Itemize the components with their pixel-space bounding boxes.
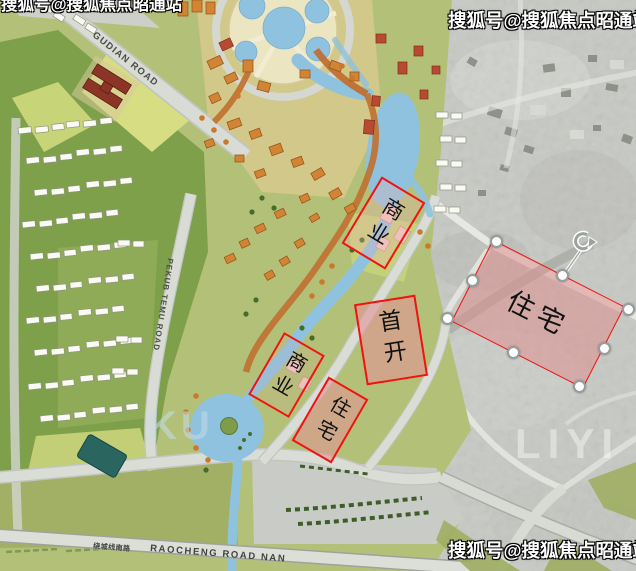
selection-handle-n[interactable] [556,269,569,282]
selection-handle-w[interactable] [466,274,479,287]
selection-handle-e[interactable] [598,342,611,355]
selection-handle-sw[interactable] [441,312,454,325]
zone-first-launch[interactable]: 首开 [354,295,428,386]
watermark-sohu-bottom-right: 搜狐号@搜狐焦点昭通站 [448,537,636,563]
rotate-handle-icon[interactable] [576,234,597,249]
watermark-sohu-top-left: 搜狐号@搜狐焦点昭通站 [1,0,182,15]
master-plan-screenshot: GUDIAN ROAD PEKUB TEMU ROAD 绕城线南路 RAOCHE… [0,0,636,571]
zone-label: 商业 [264,347,308,404]
watermark-sohu-top-right: 搜狐号@搜狐焦点昭通站 [448,7,636,33]
lake [190,394,264,462]
zone-label: 首开 [375,308,407,373]
selection-handle-nw[interactable] [490,235,503,248]
selection-handle-ne[interactable] [622,303,635,316]
zone-label: 商业 [360,194,407,253]
zone-label: 住宅 [502,287,573,341]
selection-handle-se[interactable] [573,380,586,393]
selection-handle-s[interactable] [507,346,520,359]
